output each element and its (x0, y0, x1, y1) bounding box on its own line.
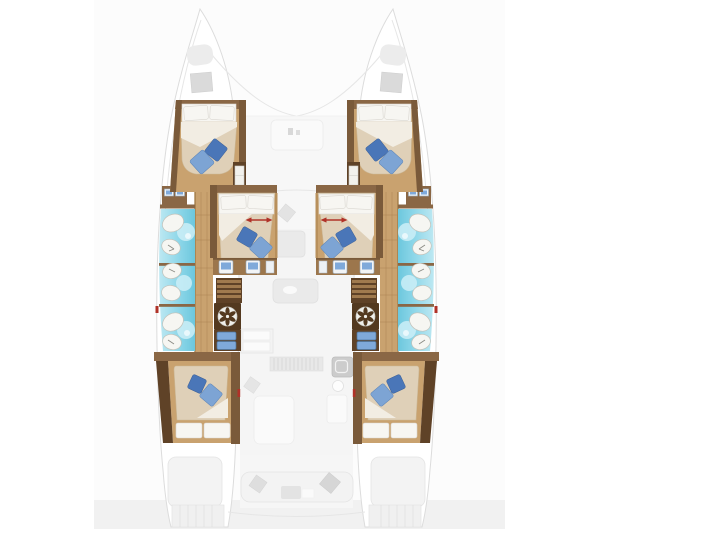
fridge (327, 395, 347, 423)
stern-crossbeam (228, 512, 365, 517)
center-ghost-deck (228, 116, 365, 517)
cockpit-table (281, 486, 301, 499)
deck-plan-illustration (0, 0, 720, 540)
grill (270, 357, 323, 371)
salon-table (273, 279, 318, 303)
windlass-icon (296, 130, 300, 135)
cockpit (228, 455, 365, 517)
stove (332, 357, 353, 377)
galley-sink (333, 381, 344, 392)
salon-settee (254, 396, 294, 444)
windlass-icon (288, 128, 293, 135)
